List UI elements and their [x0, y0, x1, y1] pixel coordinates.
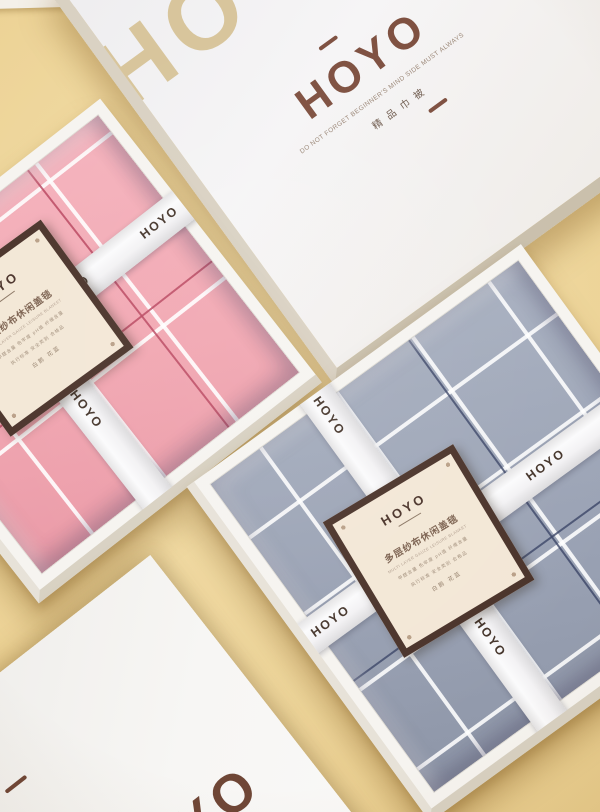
brand-logo-partial: HOYO: [93, 756, 270, 812]
dash-icon: [428, 97, 448, 113]
dash-icon: [318, 35, 338, 51]
product-photo-scene: HOYO HOYO DO NOT FORGET BEGINNER'S MIND …: [0, 0, 600, 812]
dash-icon: [4, 775, 27, 794]
lid-logo-block: HOYO DO NOT FORGET BEGINNER'S MIND SIDE …: [241, 0, 505, 200]
